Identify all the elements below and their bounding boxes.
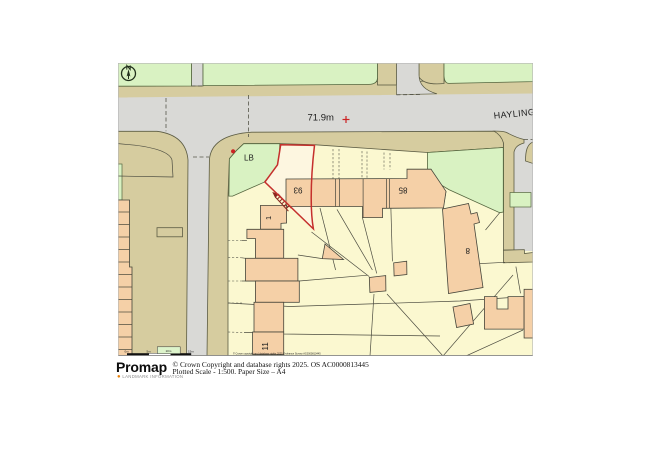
svg-text:11: 11 [261,342,270,351]
svg-text:8: 8 [465,246,470,255]
svg-text:5m: 5m [147,349,152,353]
svg-text:15m: 15m [188,349,194,353]
svg-text:93: 93 [293,186,302,195]
svg-text:0m: 0m [125,349,130,353]
svg-text:1: 1 [264,216,273,220]
svg-text:10m: 10m [166,349,172,353]
svg-text:71.9m: 71.9m [308,113,334,124]
svg-text:© Crown copyright and database: © Crown copyright and database rights 20… [233,352,321,355]
svg-text:LB: LB [244,154,254,163]
svg-text:85: 85 [398,185,407,194]
